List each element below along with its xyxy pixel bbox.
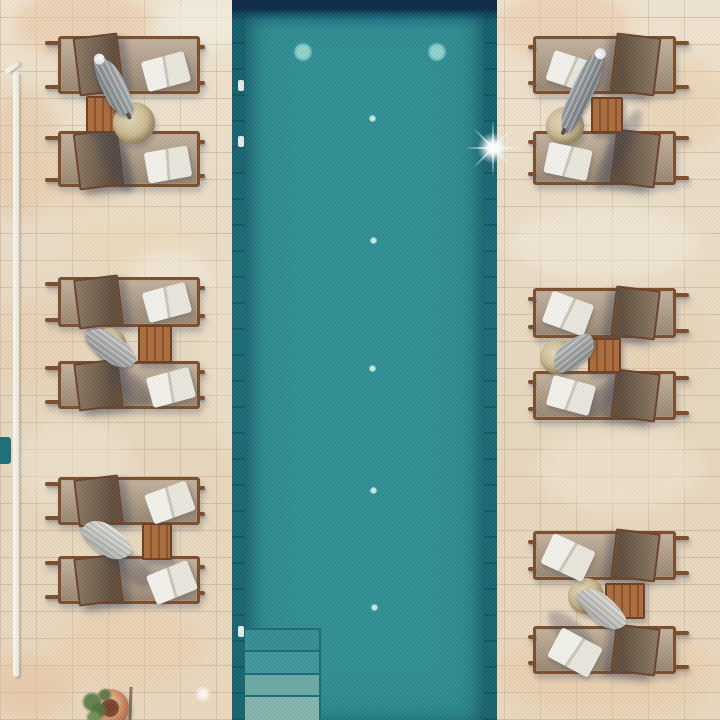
stone-patch [18,418,130,510]
pool-edge-left [232,0,245,720]
pool-floor-dot [370,237,377,244]
stone-patch [538,428,700,510]
white-pole [13,71,19,677]
stone-patch [15,0,150,60]
pool-steps [245,628,321,720]
stone-patch [130,248,212,310]
pool-floor-dot [369,365,376,372]
potted-plant [91,689,129,720]
pool-wall-jet [238,136,244,147]
stone-patch [508,208,700,280]
pool-floor-dot [371,604,378,611]
aerial-pool-photo [0,0,720,720]
pool-edge-right [484,0,497,720]
stone-patch [30,148,115,210]
pool-floor-dot [369,115,376,122]
pool-step [245,673,321,695]
sun-glint [465,120,521,176]
pool-light [294,43,312,61]
pool-step [245,695,321,720]
pool-wall-jet [238,626,244,637]
pool-light [428,43,446,61]
pool-step [245,628,321,650]
stone-patch [498,628,713,720]
pool-water [245,0,484,720]
neighbor-pool-sliver [0,437,11,464]
pool-step [245,650,321,673]
stone-patch [598,298,710,390]
pool-floor-dot [370,487,377,494]
pool-wall-jet [238,80,244,91]
stone-patch [498,0,630,62]
swimming-pool [232,0,497,720]
sun-glint-core [478,133,508,163]
stone-patch [58,608,200,690]
drain-cover [195,686,211,702]
plant-foliage [99,689,111,701]
pool-deep-end-shadow [232,0,497,30]
plant-foliage [87,711,100,720]
stone-patch [638,58,720,150]
